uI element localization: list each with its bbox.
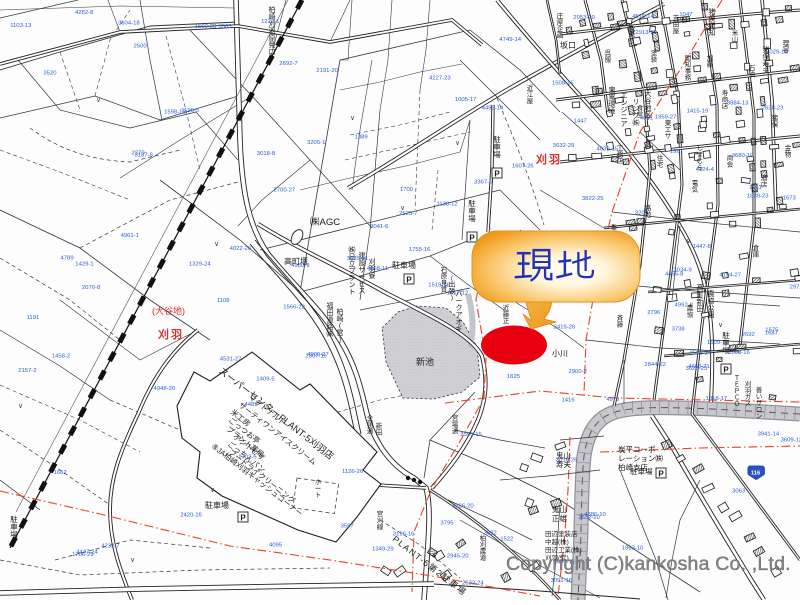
svg-text:1138-12: 1138-12: [437, 201, 458, 207]
svg-text:パークアオギ: パークアオギ: [456, 290, 463, 333]
svg-text:金物: 金物: [785, 143, 792, 159]
svg-text:東工サ: 東工サ: [665, 118, 672, 140]
svg-text:1349-29: 1349-29: [372, 546, 394, 552]
svg-text:2638-23: 2638-23: [762, 105, 784, 111]
svg-text:3063: 3063: [732, 489, 746, 495]
svg-text:4039-15: 4039-15: [597, 147, 619, 153]
svg-text:1458-2: 1458-2: [52, 354, 70, 360]
svg-text:レーション㈱: レーション㈱: [618, 453, 663, 463]
svg-text:高町新田: 高町新田: [697, 283, 704, 313]
svg-text:1447: 1447: [574, 118, 587, 124]
svg-text:P: P: [494, 170, 500, 179]
svg-text:全領通: 全領通: [367, 413, 374, 435]
svg-text:4095: 4095: [269, 542, 283, 548]
svg-text:1416: 1416: [562, 398, 576, 404]
svg-text:3604-18: 3604-18: [118, 21, 140, 27]
svg-text:3520: 3520: [43, 70, 57, 76]
svg-text:2419-26: 2419-26: [554, 324, 576, 330]
svg-text:間知事務: 間知事務: [685, 54, 692, 82]
svg-text:1566-23: 1566-23: [283, 305, 305, 311]
svg-text:4789: 4789: [61, 256, 74, 262]
svg-text:田辺塗装店: 田辺塗装店: [545, 529, 578, 538]
svg-text:3738: 3738: [672, 326, 686, 332]
svg-text:塗装: 塗装: [651, 48, 658, 64]
svg-text:1191: 1191: [27, 315, 40, 321]
svg-text:1389: 1389: [355, 134, 368, 140]
svg-text:P: P: [240, 514, 246, 523]
svg-text:米山: 米山: [732, 28, 739, 44]
svg-text:3367-6: 3367-6: [474, 180, 493, 186]
svg-text:2053-20: 2053-20: [573, 15, 595, 21]
svg-text:加藤: 加藤: [707, 53, 714, 69]
svg-text:2972: 2972: [790, 284, 800, 290]
svg-text:1108: 1108: [217, 298, 230, 304]
svg-text:1967: 1967: [670, 149, 683, 155]
svg-text:宮場通: 宮場通: [452, 413, 459, 435]
svg-text:P: P: [406, 276, 412, 285]
svg-text:石油: 石油: [749, 64, 756, 79]
svg-text:4489: 4489: [245, 402, 258, 408]
svg-text:善いサロン: 善いサロン: [756, 385, 763, 420]
svg-text:鬼山: 鬼山: [556, 450, 571, 460]
svg-text:㈱日立プラント: ㈱日立プラント: [349, 245, 356, 296]
svg-text:P: P: [723, 366, 729, 375]
svg-text:4022-26: 4022-26: [230, 246, 252, 252]
svg-text:2844-22: 2844-22: [644, 362, 666, 368]
svg-text:3563: 3563: [219, 24, 233, 30]
svg-text:2535-14: 2535-14: [690, 351, 712, 357]
svg-text:1863-10: 1863-10: [622, 545, 644, 551]
svg-text:2913-29: 2913-29: [635, 30, 657, 36]
svg-text:刈羽ガス: 刈羽ガス: [745, 379, 752, 408]
svg-text:∨: ∨: [350, 115, 355, 122]
svg-text:1808-16: 1808-16: [728, 350, 750, 356]
svg-text:∨: ∨: [210, 487, 215, 494]
svg-text:1447-8: 1447-8: [693, 244, 712, 250]
svg-text:4961-1: 4961-1: [121, 233, 139, 239]
svg-text:1786-29: 1786-29: [72, 552, 94, 558]
svg-text:1700: 1700: [400, 187, 414, 193]
svg-text:3018-8: 3018-8: [257, 151, 276, 157]
svg-text:坂東: 坂東: [629, 23, 636, 39]
svg-text:刈羽寮: 刈羽寮: [369, 257, 376, 280]
svg-text:小川: 小川: [552, 349, 568, 358]
svg-text:しまむら: しまむら: [697, 144, 704, 172]
svg-text:1508-15: 1508-15: [552, 80, 574, 86]
svg-text:1329-24: 1329-24: [189, 261, 211, 267]
svg-text:刈羽: 刈羽: [158, 327, 184, 341]
svg-text:駐車場: 駐車場: [10, 514, 18, 539]
svg-text:猪俣寿夫: 猪俣寿夫: [763, 45, 770, 75]
svg-text:坂口: 坂口: [560, 40, 576, 50]
svg-text:ＴＥＰＣＯ: ＴＥＰＣＯ: [734, 375, 741, 408]
svg-text:1429-1: 1429-1: [75, 261, 93, 267]
svg-text:2420-16: 2420-16: [180, 512, 202, 518]
svg-text:2945-20: 2945-20: [447, 553, 469, 559]
svg-text:4516-14: 4516-14: [632, 14, 654, 20]
svg-text:Copyright (C)kankosha Co. ,Ltd: Copyright (C)kankosha Co. ,Ltd.: [506, 553, 791, 575]
svg-text:4493-14: 4493-14: [482, 105, 504, 111]
svg-text:リング㈱: リング㈱: [633, 99, 640, 127]
svg-text:近江屋: 近江屋: [527, 83, 534, 105]
svg-text:工務店: 工務店: [617, 145, 624, 165]
svg-text:酒店: 酒店: [761, 174, 768, 189]
svg-text:庄屋企画: 庄屋企画: [557, 11, 564, 40]
svg-text:∨: ∨: [96, 97, 101, 104]
svg-text:駐車場: 駐車場: [493, 134, 501, 159]
svg-text:4194-27: 4194-27: [719, 272, 741, 278]
svg-text:∨: ∨: [214, 241, 219, 248]
svg-text:住宅: 住宅: [657, 153, 664, 169]
svg-text:刈羽: 刈羽: [536, 152, 562, 166]
svg-text:1005-17: 1005-17: [455, 97, 477, 103]
svg-text:P: P: [469, 234, 475, 243]
svg-text:2191-20: 2191-20: [316, 68, 338, 74]
svg-text:3632-29: 3632-29: [553, 143, 575, 149]
svg-text:2900-2: 2900-2: [569, 369, 587, 375]
svg-text:1662: 1662: [54, 470, 67, 476]
svg-text:炭平コーポ: 炭平コーポ: [618, 445, 656, 454]
svg-text:∨: ∨: [400, 205, 405, 212]
svg-text:駐車場: 駐車場: [392, 260, 416, 270]
svg-text:1592-28: 1592-28: [195, 24, 217, 30]
svg-text:2500: 2500: [134, 43, 148, 49]
svg-text:2700-27: 2700-27: [274, 187, 296, 193]
svg-text:1519-18: 1519-18: [428, 283, 450, 289]
svg-text:3609-12: 3609-12: [781, 438, 800, 444]
svg-text:2632-10: 2632-10: [578, 515, 600, 521]
svg-text:新田: 新田: [376, 421, 383, 437]
svg-text:エンジニア: エンジニア: [621, 93, 628, 128]
svg-text:農協公園: 農協公園: [708, 289, 715, 319]
svg-text:4948-20: 4948-20: [154, 386, 176, 392]
svg-text:正雄: 正雄: [552, 513, 567, 523]
svg-text:3597: 3597: [341, 523, 354, 529]
svg-text:2070-8: 2070-8: [82, 285, 101, 291]
svg-text:1409-5: 1409-5: [256, 377, 275, 383]
svg-text:4227-23: 4227-23: [429, 75, 451, 81]
svg-text:福田道路㈱: 福田道路㈱: [327, 301, 334, 338]
svg-text:高町堰: 高町堰: [284, 256, 308, 266]
svg-text:ホート: ホート: [315, 478, 322, 499]
svg-text:宮刈線: 宮刈線: [377, 509, 384, 531]
svg-text:4232-7: 4232-7: [101, 544, 119, 550]
svg-text:2692-7: 2692-7: [279, 61, 297, 67]
svg-text:中越(株): 中越(株): [545, 537, 569, 546]
svg-text:寿夫: 寿夫: [556, 459, 571, 469]
svg-text:4979: 4979: [606, 397, 619, 403]
svg-text:3822-25: 3822-25: [582, 196, 604, 202]
svg-text:電気: 電気: [692, 179, 699, 194]
svg-text:2633-24: 2633-24: [462, 581, 484, 587]
svg-text:2796: 2796: [647, 310, 661, 316]
svg-text:2307-11: 2307-11: [305, 353, 326, 359]
svg-text:新池: 新池: [416, 356, 434, 367]
svg-text:寿商店: 寿商店: [722, 88, 729, 110]
svg-text:猪俣: 猪俣: [772, 113, 779, 129]
svg-text:駐車場: 駐車場: [468, 198, 476, 223]
svg-text:大谷地区: 大谷地区: [645, 89, 652, 119]
svg-text:4749-14: 4749-14: [499, 37, 521, 43]
svg-text:∨: ∨: [130, 557, 135, 564]
svg-text:柏崎刈羽原発口: 柏崎刈羽原発口: [269, 5, 276, 56]
svg-text:3941-14: 3941-14: [758, 431, 780, 437]
svg-text:3187-8: 3187-8: [135, 153, 154, 159]
svg-text:3822: 3822: [484, 530, 497, 536]
svg-text:3884-13: 3884-13: [727, 101, 749, 107]
svg-text:駐車場: 駐車場: [722, 330, 730, 355]
svg-text:建設サービス: 建設サービス: [359, 251, 366, 295]
svg-text:(大谷地): (大谷地): [152, 305, 185, 316]
svg-text:倉庫: 倉庫: [753, 243, 760, 259]
svg-text:商会: 商会: [727, 153, 734, 169]
svg-text:1702-5: 1702-5: [238, 454, 257, 460]
svg-text:駐車場: 駐車場: [205, 500, 229, 510]
svg-text:1687: 1687: [765, 331, 778, 337]
svg-text:猪俣間知: 猪俣間知: [709, 7, 716, 37]
svg-text:1126-26: 1126-26: [342, 469, 364, 475]
svg-text:3041-6: 3041-6: [370, 224, 389, 230]
svg-text:石原見質: 石原見質: [441, 266, 448, 294]
svg-text:1047: 1047: [679, 12, 692, 18]
svg-text:3680-10: 3680-10: [732, 153, 754, 159]
svg-text:1673: 1673: [783, 196, 797, 202]
svg-text:㈱AGC: ㈱AGC: [310, 216, 340, 228]
svg-text:3205-1: 3205-1: [307, 140, 325, 146]
svg-text:4282-8: 4282-8: [75, 10, 94, 16]
svg-text:呉服: 呉服: [605, 49, 612, 64]
svg-text:1522: 1522: [500, 537, 513, 543]
svg-text:4663-21: 4663-21: [688, 364, 710, 370]
svg-text:116: 116: [751, 471, 761, 477]
svg-text:柏崎支店: 柏崎支店: [618, 462, 648, 472]
svg-text:4531-27: 4531-27: [220, 357, 242, 363]
svg-text:1755-16: 1755-16: [409, 247, 431, 253]
svg-text:2692: 2692: [742, 332, 755, 338]
svg-text:1625: 1625: [507, 374, 521, 380]
svg-text:∨: ∨: [455, 140, 460, 147]
svg-text:1839-23: 1839-23: [747, 193, 769, 199]
svg-text:吉田屋: 吉田屋: [673, 14, 680, 35]
svg-text:1818-17: 1818-17: [706, 396, 728, 402]
svg-text:1195-5: 1195-5: [181, 108, 200, 114]
svg-text:∨: ∨: [686, 238, 691, 245]
svg-text:2157-2: 2157-2: [18, 368, 36, 374]
svg-text:1607-26: 1607-26: [512, 164, 534, 170]
svg-text:柏刈農道: 柏刈農道: [480, 533, 487, 562]
svg-text:斉藤: 斉藤: [617, 313, 624, 329]
svg-text:東電環境: 東電環境: [609, 85, 616, 115]
svg-text:2034-9: 2034-9: [673, 267, 691, 273]
svg-text:P: P: [658, 470, 664, 479]
svg-text:∨: ∨: [18, 403, 23, 410]
svg-text:農協: 農協: [687, 303, 694, 319]
svg-text:3795: 3795: [440, 521, 454, 527]
svg-text:1415-19: 1415-19: [687, 109, 709, 115]
svg-text:路地: 路地: [645, 203, 652, 219]
svg-text:1103-13: 1103-13: [10, 23, 32, 29]
svg-text:理容: 理容: [783, 39, 790, 54]
svg-text:鬼山: 鬼山: [552, 504, 567, 514]
svg-text:∨: ∨: [718, 322, 723, 329]
